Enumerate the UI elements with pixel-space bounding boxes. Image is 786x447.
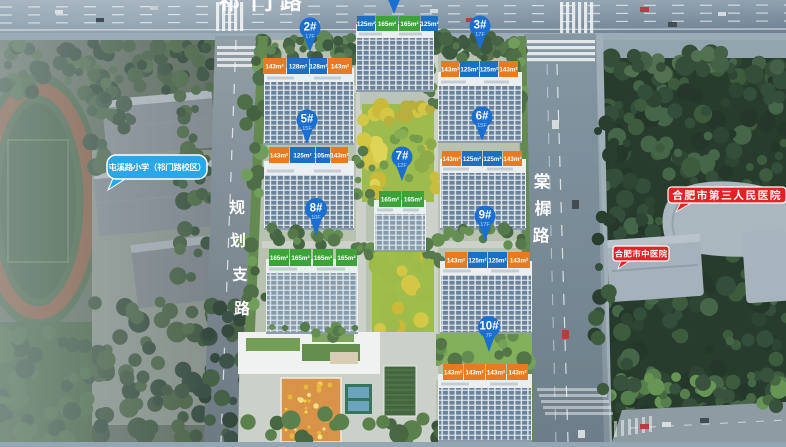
svg-text:3#: 3# — [474, 20, 487, 32]
svg-text:125m²: 125m² — [293, 153, 311, 160]
svg-text:17F: 17F — [475, 32, 485, 38]
svg-text:9#: 9# — [479, 210, 492, 222]
svg-text:125m²: 125m² — [463, 156, 481, 163]
svg-text:125m²: 125m² — [460, 67, 478, 74]
svg-text:125m²: 125m² — [488, 258, 506, 265]
svg-text:128m²: 128m² — [309, 64, 327, 71]
svg-text:15F: 15F — [302, 126, 312, 132]
svg-text:8#: 8# — [310, 203, 323, 215]
svg-text:143m²: 143m² — [499, 67, 517, 74]
svg-text:125m²: 125m² — [420, 21, 438, 28]
svg-text:10F: 10F — [311, 215, 321, 221]
svg-text:165m²: 165m² — [337, 255, 355, 262]
svg-text:165m²: 165m² — [378, 21, 396, 28]
svg-text:143m²: 143m² — [441, 67, 459, 74]
svg-text:165m²: 165m² — [404, 197, 422, 204]
svg-text:143m²: 143m² — [503, 156, 521, 163]
svg-text:143m²: 143m² — [487, 370, 505, 377]
svg-text:143m²: 143m² — [265, 64, 283, 71]
svg-text:6#: 6# — [476, 111, 489, 123]
svg-text:165m²: 165m² — [291, 255, 309, 262]
svg-text:143m²: 143m² — [447, 258, 465, 265]
svg-text:165m²: 165m² — [314, 255, 332, 262]
svg-text:125m²: 125m² — [357, 21, 375, 28]
svg-text:125m²: 125m² — [483, 156, 501, 163]
svg-text:165m²: 165m² — [270, 255, 288, 262]
svg-text:143m²: 143m² — [331, 64, 349, 71]
svg-text:143m²: 143m² — [508, 370, 526, 377]
svg-text:125m²: 125m² — [468, 258, 486, 265]
svg-text:5#: 5# — [301, 114, 314, 126]
svg-text:12F: 12F — [397, 163, 407, 169]
svg-text:143m²: 143m² — [444, 370, 462, 377]
svg-text:2#: 2# — [304, 22, 317, 34]
svg-text:143m²: 143m² — [330, 153, 348, 160]
svg-text:128m²: 128m² — [289, 64, 307, 71]
svg-text:7F: 7F — [486, 333, 493, 339]
svg-text:17F: 17F — [480, 222, 490, 228]
svg-text:17F: 17F — [305, 34, 315, 40]
svg-text:143m²: 143m² — [442, 156, 460, 163]
svg-text:105m²: 105m² — [314, 153, 332, 160]
svg-text:15F: 15F — [477, 123, 487, 129]
svg-text:7#: 7# — [396, 151, 409, 163]
svg-text:10#: 10# — [479, 321, 499, 333]
svg-text:143m²: 143m² — [510, 258, 528, 265]
svg-text:165m²: 165m² — [400, 21, 418, 28]
svg-text:165m²: 165m² — [381, 197, 399, 204]
svg-text:125m²: 125m² — [480, 67, 498, 74]
svg-text:143m²: 143m² — [270, 153, 288, 160]
svg-text:143m²: 143m² — [465, 370, 483, 377]
